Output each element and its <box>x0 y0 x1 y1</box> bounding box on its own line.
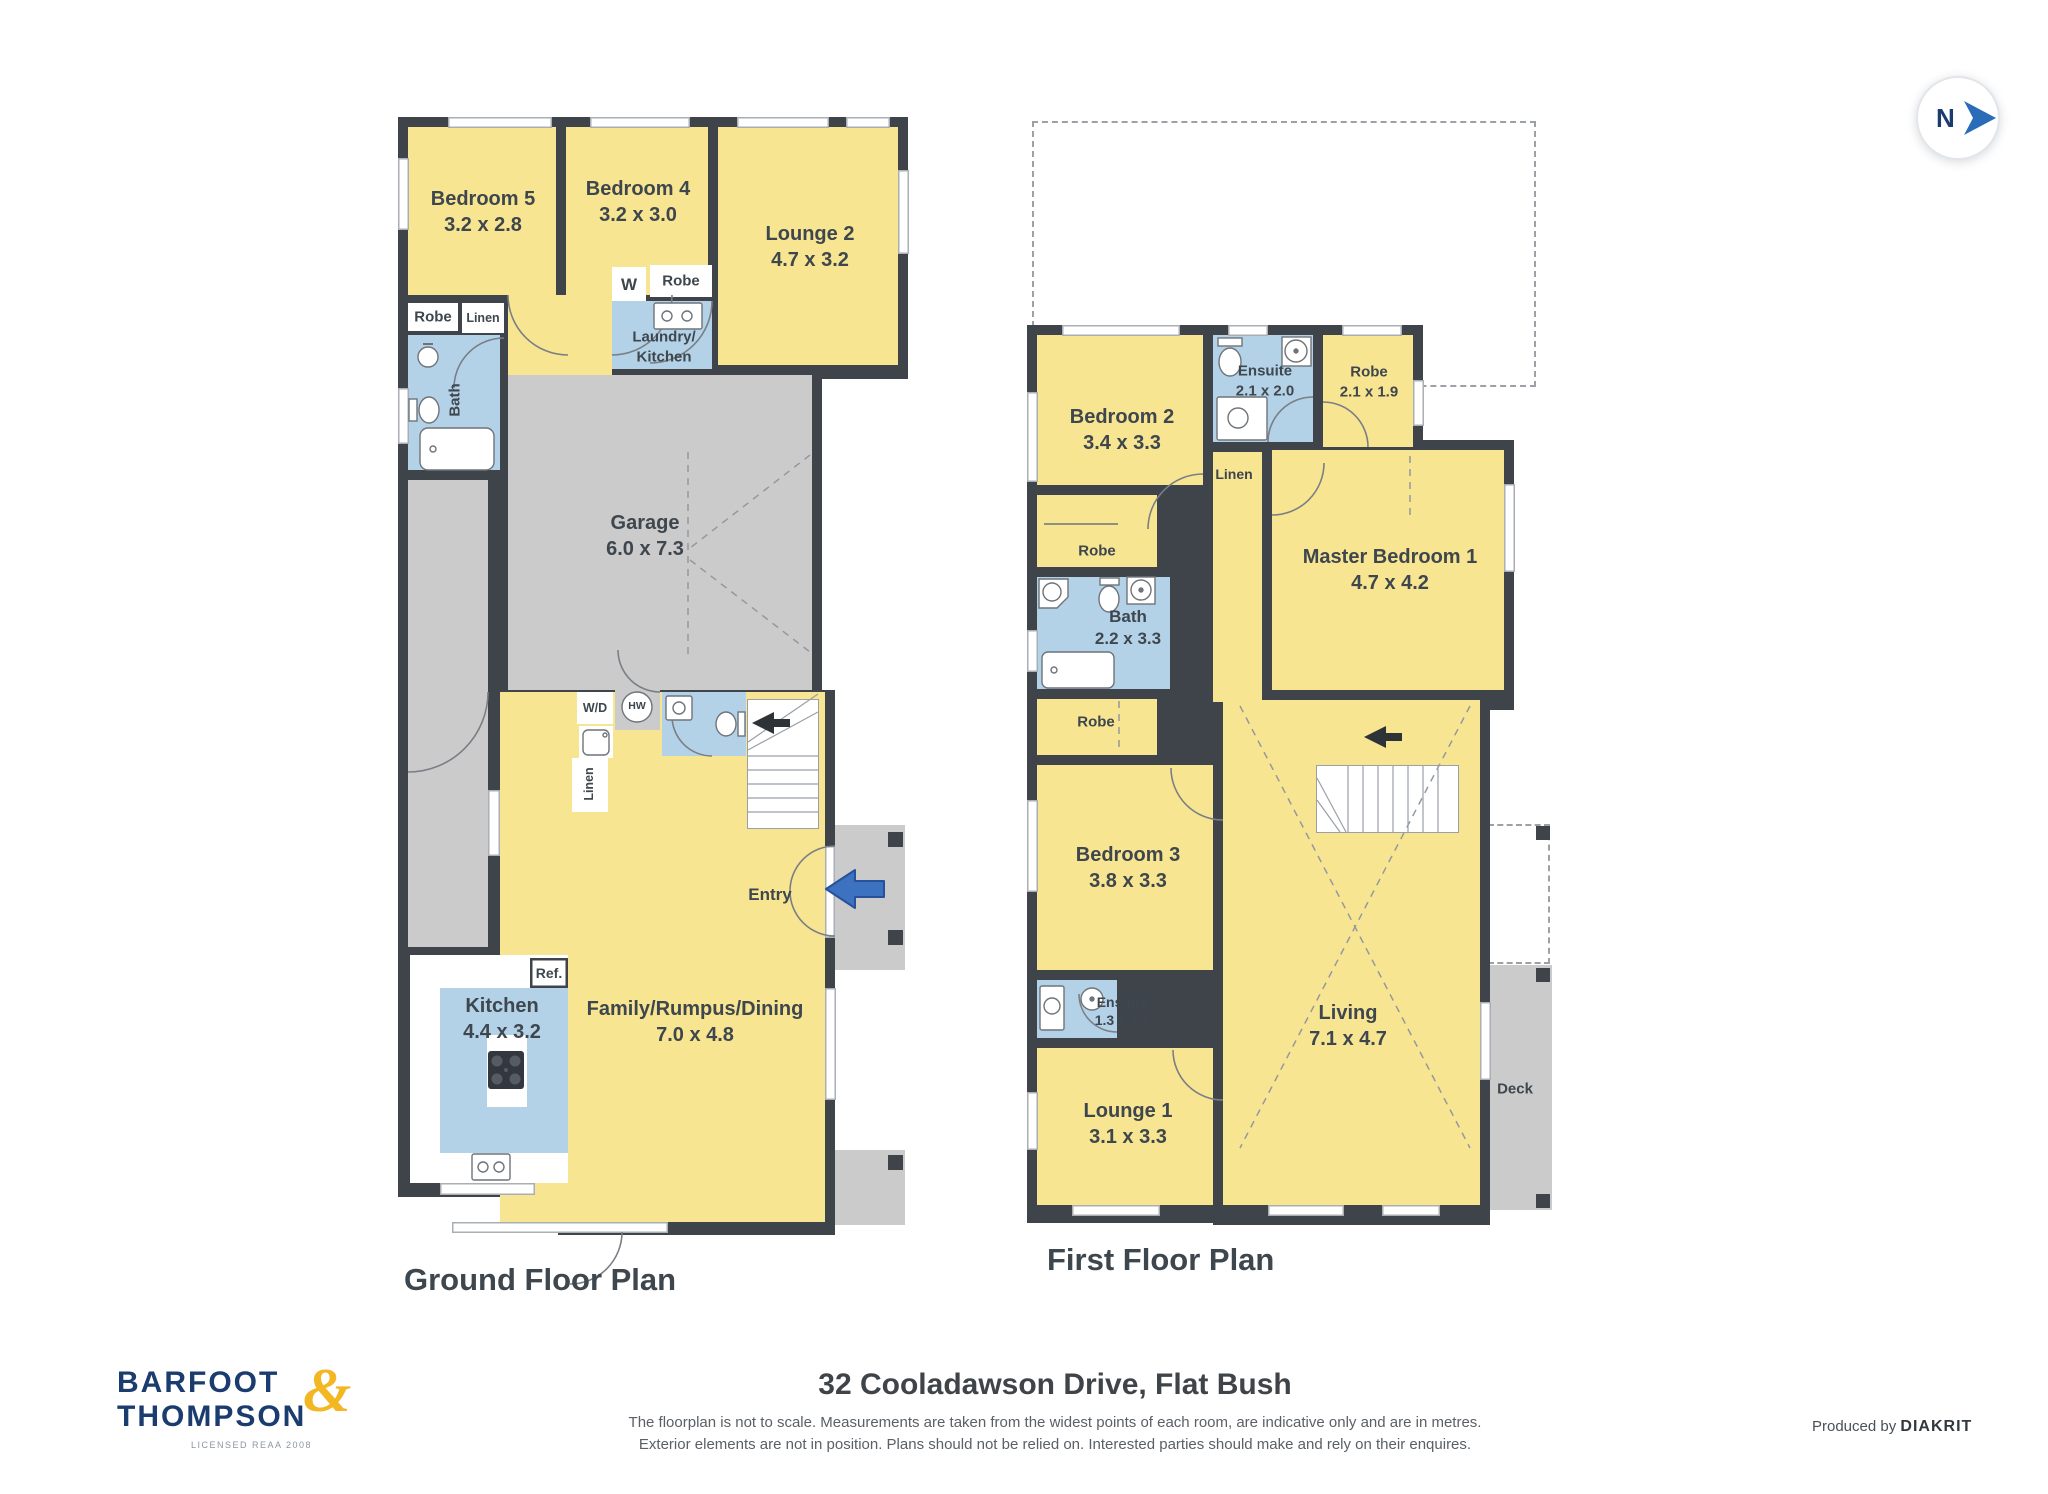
producer-name: DIAKRIT <box>1900 1418 1972 1435</box>
logo-tagline: LICENSED REAA 2008 <box>191 1440 312 1450</box>
sliding-door <box>825 988 836 1100</box>
disclaimer-text: The floorplan is not to scale. Measureme… <box>520 1412 1590 1456</box>
staircase-ground <box>748 700 818 828</box>
window <box>488 790 500 856</box>
porch-outline-dashed <box>1488 824 1550 964</box>
logo-line-2: THOMPSON <box>117 1400 312 1434</box>
label-robe-first: Robe2.1 x 1.9 <box>1340 363 1398 402</box>
disclaimer-line-1: The floorplan is not to scale. Measureme… <box>520 1412 1590 1434</box>
label-deck: Deck <box>1497 1079 1533 1099</box>
window <box>1228 325 1268 336</box>
label-laundry-kitchen: Laundry/Kitchen <box>632 328 695 367</box>
staircase-first <box>1317 766 1458 832</box>
window <box>846 117 890 128</box>
logo-ampersand: & <box>303 1356 351 1427</box>
label-washer: W <box>621 274 637 296</box>
logo-line-1: BARFOOT <box>117 1366 312 1400</box>
label-linen: Linen <box>466 310 499 326</box>
label-robe: Robe <box>662 271 700 291</box>
label-bedroom-5: Bedroom 53.2 x 2.8 <box>431 186 535 238</box>
window <box>398 388 409 444</box>
label-bedroom-3: Bedroom 33.8 x 3.3 <box>1076 842 1180 894</box>
ground-floor-plan-title: Ground Floor Plan <box>404 1262 676 1298</box>
north-label: N <box>1936 103 1955 134</box>
label-kitchen: Kitchen4.4 x 3.2 <box>463 993 541 1045</box>
porch-post <box>888 930 903 945</box>
window <box>440 1183 535 1195</box>
property-address: 32 Cooladawson Drive, Flat Bush <box>520 1368 1590 1402</box>
barfoot-thompson-logo: BARFOOT THOMPSON & LICENSED REAA 2008 <box>117 1366 312 1450</box>
window <box>1027 800 1038 892</box>
disclaimer-line-2: Exterior elements are not in position. P… <box>520 1434 1590 1456</box>
label-ensuite-2: Ensuite1.3 x 2.1 <box>1095 993 1150 1029</box>
porch-post <box>888 832 903 847</box>
sliding-door <box>1480 1002 1491 1080</box>
label-garage: Garage6.0 x 7.3 <box>606 510 684 562</box>
window <box>1062 325 1180 336</box>
label-living: Living7.1 x 4.7 <box>1309 1000 1387 1052</box>
garage-side-strip <box>408 480 488 947</box>
label-washer-dryer: W/D <box>583 700 607 716</box>
window <box>898 170 909 254</box>
deck-post <box>1536 968 1550 982</box>
label-fridge: Ref. <box>536 964 562 982</box>
window <box>1382 1205 1440 1216</box>
deck-post <box>1536 1194 1550 1208</box>
label-hot-water: HW <box>628 700 646 714</box>
window <box>590 117 690 128</box>
toilet-room <box>662 692 746 756</box>
window <box>737 117 829 128</box>
laundry-tub <box>579 726 613 758</box>
window <box>1504 484 1515 572</box>
label-lounge-1: Lounge 13.1 x 3.3 <box>1084 1098 1173 1150</box>
label-linen: Linen <box>1215 465 1252 483</box>
sliding-door <box>452 1222 668 1233</box>
label-robe: Robe <box>1077 712 1115 732</box>
label-bath-first: Bath2.2 x 3.3 <box>1095 606 1161 650</box>
hallway-ground <box>508 295 612 375</box>
label-ensuite-1: Ensuite2.1 x 2.0 <box>1236 362 1294 401</box>
entry-door-opening <box>825 846 835 938</box>
window <box>1342 325 1402 336</box>
produced-by: Produced by DIAKRIT <box>1812 1418 1972 1436</box>
label-linen: Linen <box>581 767 597 800</box>
window <box>398 158 409 230</box>
label-family-rumpus-dining: Family/Rumpus/Dining7.0 x 4.8 <box>587 996 804 1048</box>
window <box>1027 630 1038 672</box>
label-robe: Robe <box>1078 541 1116 561</box>
label-bath: Bath <box>445 383 465 416</box>
window <box>1268 1205 1344 1216</box>
kitchen-island <box>487 1035 527 1107</box>
hallway-first <box>1213 452 1262 702</box>
window <box>1413 380 1424 426</box>
label-master-bedroom: Master Bedroom 14.7 x 4.2 <box>1303 544 1478 596</box>
label-bedroom-4: Bedroom 43.2 x 3.0 <box>586 176 690 228</box>
window <box>1027 1092 1038 1150</box>
window <box>1027 392 1038 482</box>
footer-center: 32 Cooladawson Drive, Flat Bush The floo… <box>520 1368 1590 1456</box>
label-entry: Entry <box>748 884 791 906</box>
floorplan-page: Bedroom 53.2 x 2.8 Bedroom 43.2 x 3.0 Lo… <box>0 0 2048 1494</box>
north-compass <box>1916 76 2000 160</box>
deck-post <box>1536 826 1550 840</box>
first-floor-plan-title: First Floor Plan <box>1047 1242 1274 1278</box>
label-bedroom-2: Bedroom 23.4 x 3.3 <box>1070 404 1174 456</box>
label-lounge-2: Lounge 24.7 x 3.2 <box>766 221 855 273</box>
plan-overlay <box>0 0 2048 1494</box>
porch-post <box>888 1155 903 1170</box>
window <box>1072 1205 1160 1216</box>
produced-by-label: Produced by <box>1812 1418 1896 1435</box>
window <box>448 117 552 128</box>
label-robe: Robe <box>414 307 452 327</box>
